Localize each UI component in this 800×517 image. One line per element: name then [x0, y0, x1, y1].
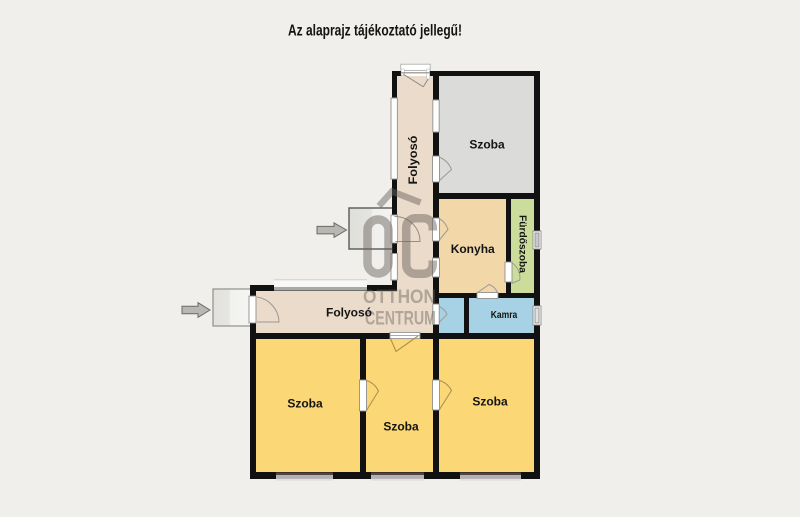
svg-text:Fürdőszoba: Fürdőszoba — [517, 215, 528, 273]
svg-text:Szoba: Szoba — [383, 420, 419, 434]
svg-text:Szoba: Szoba — [469, 137, 505, 151]
svg-text:Folyosó: Folyosó — [406, 136, 420, 185]
svg-text:Folyosó: Folyosó — [326, 306, 372, 320]
svg-text:CENTRUM: CENTRUM — [365, 307, 436, 329]
svg-text:Az alaprajz tájékoztató jelleg: Az alaprajz tájékoztató jellegű! — [288, 23, 462, 40]
svg-text:Konyha: Konyha — [451, 242, 495, 256]
svg-text:Kamra: Kamra — [491, 310, 518, 321]
svg-text:OTTHON: OTTHON — [363, 286, 436, 308]
svg-text:Szoba: Szoba — [287, 397, 323, 411]
svg-text:Szoba: Szoba — [472, 395, 508, 409]
